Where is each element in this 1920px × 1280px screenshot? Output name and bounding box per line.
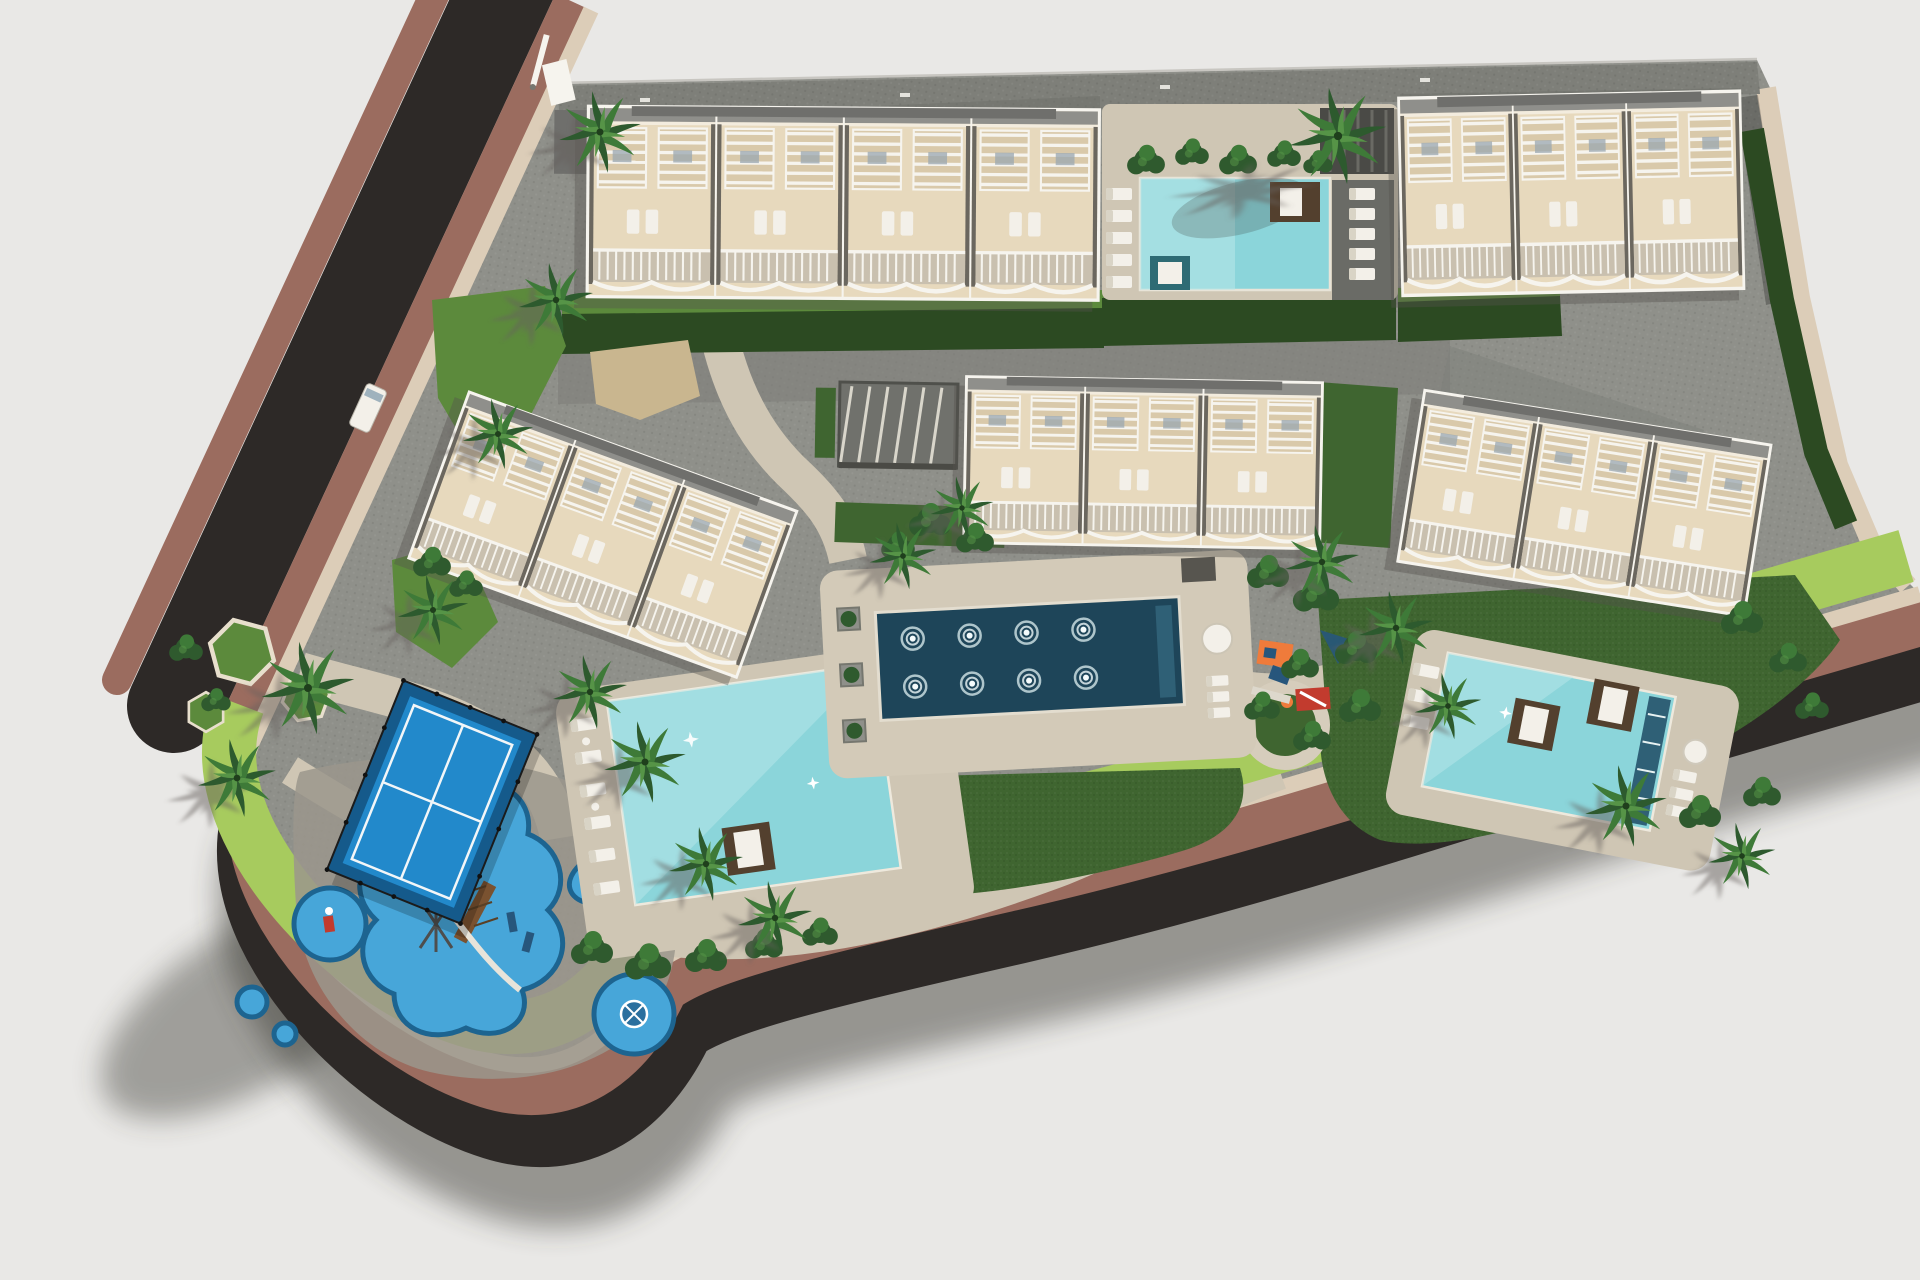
building-b4 <box>951 375 1324 559</box>
kiosk <box>1181 557 1216 583</box>
parasol <box>1201 623 1233 655</box>
daybed <box>722 822 776 876</box>
daybed <box>1586 678 1639 731</box>
building-b2 <box>1387 89 1746 307</box>
fountain-terrace <box>819 549 1257 779</box>
daybed <box>1507 698 1560 751</box>
hedge-row-pool <box>1102 292 1396 346</box>
fountain-pool-water <box>875 597 1184 721</box>
sun-loungers <box>1206 675 1230 718</box>
lawn-between-b4-b5 <box>1312 382 1398 548</box>
site-plan-svg: Aerial 3D site-plan render of a resident… <box>0 0 1920 1280</box>
site-plan-render: Aerial 3D site-plan render of a resident… <box>0 0 1920 1280</box>
